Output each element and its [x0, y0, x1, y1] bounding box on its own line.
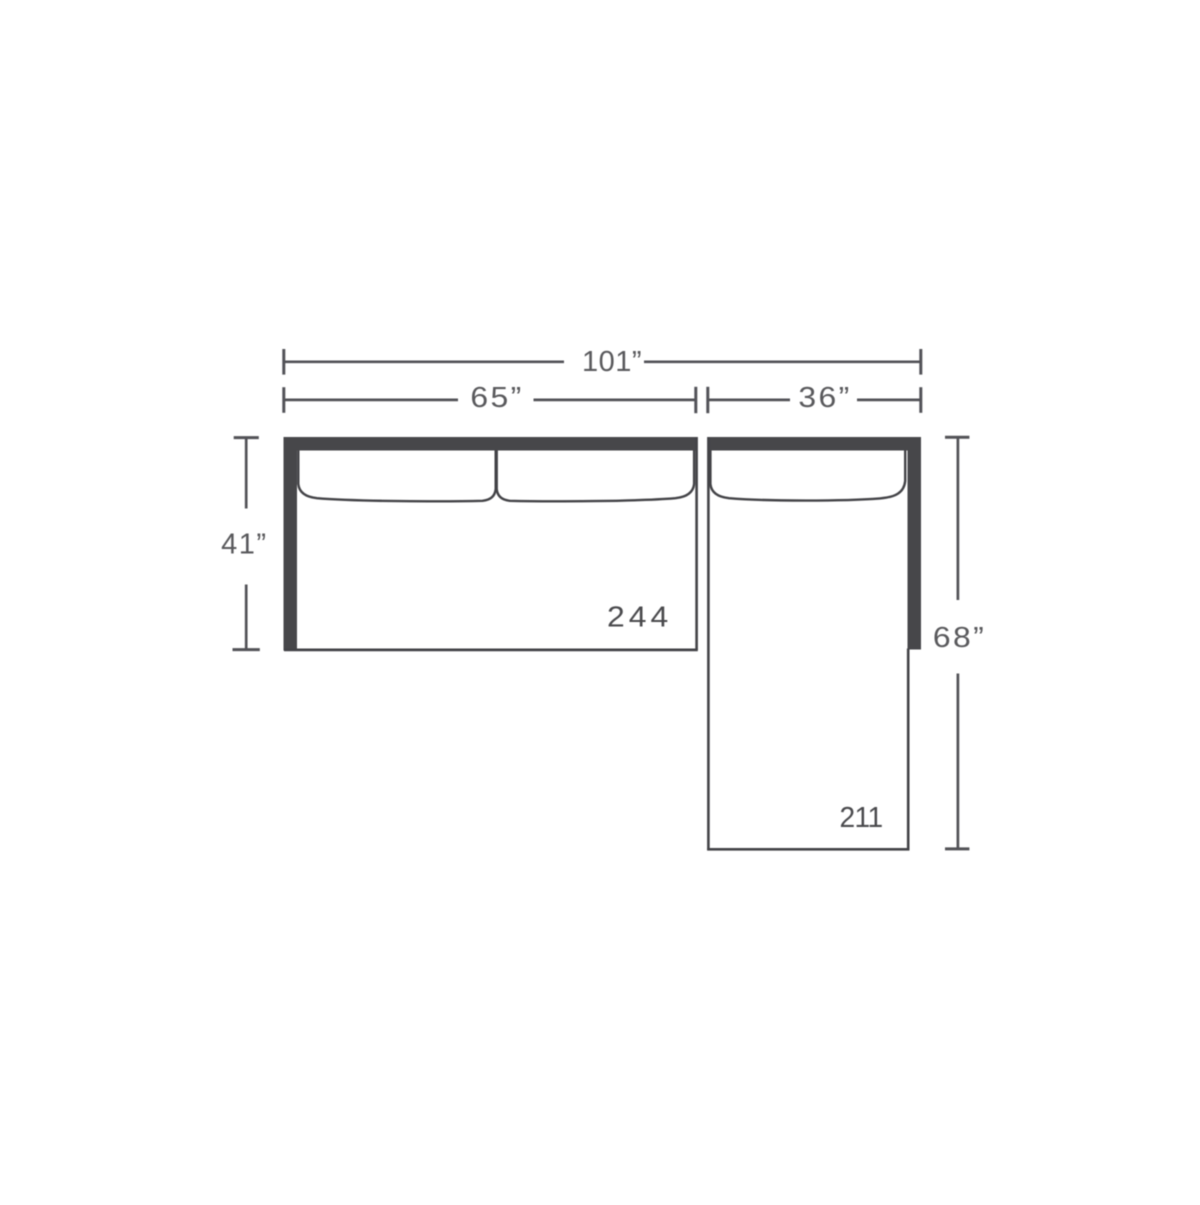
svg-text:65”: 65” [470, 381, 523, 413]
svg-text:41”: 41” [221, 529, 267, 561]
svg-text:36”: 36” [798, 381, 851, 413]
svg-text:101”: 101” [582, 346, 642, 378]
svg-text:244: 244 [607, 601, 672, 633]
svg-text:211: 211 [839, 802, 882, 834]
svg-text:68”: 68” [933, 621, 986, 653]
